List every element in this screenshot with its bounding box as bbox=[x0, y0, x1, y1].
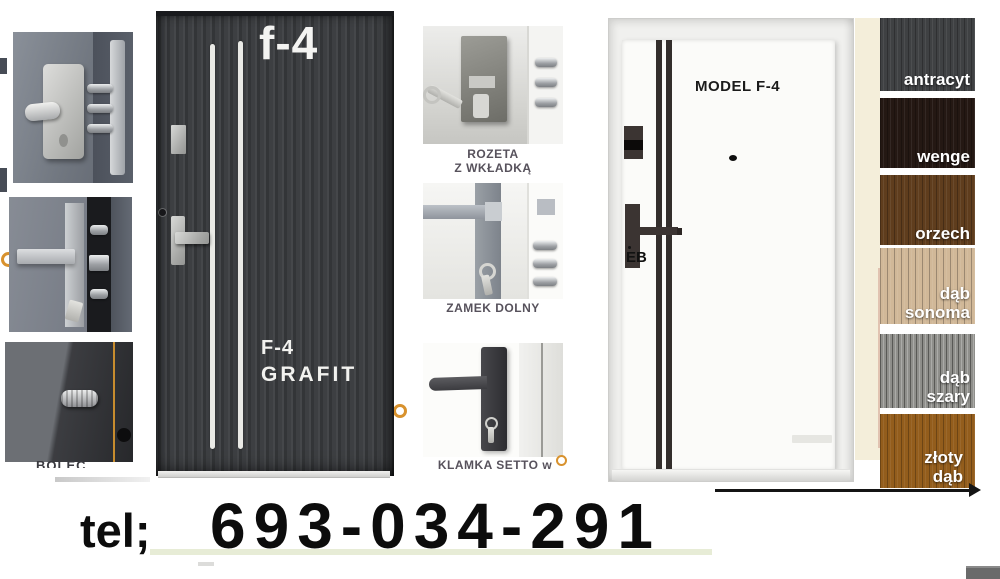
arrow-icon bbox=[969, 483, 981, 497]
swatch-label: dąb szary bbox=[910, 368, 970, 406]
bolt-shape bbox=[533, 241, 557, 250]
watermark-shape bbox=[792, 435, 832, 443]
door-edge-shape bbox=[527, 183, 563, 299]
caption-rozeta-line2: Z WKŁADKĄ bbox=[423, 161, 563, 175]
keyhole-shape bbox=[59, 134, 68, 147]
bolt-shape bbox=[535, 98, 557, 107]
white-door-model-label: MODEL F-4 bbox=[695, 78, 780, 95]
lock-cylinder-plate-shape bbox=[171, 125, 186, 154]
swatch-antracyt: antracyt bbox=[880, 18, 975, 91]
crossbar-nub-shape bbox=[677, 228, 682, 235]
swatch-orzech: orzech bbox=[880, 175, 975, 245]
door-leaf-shape: EB MODEL F-4 bbox=[622, 40, 835, 470]
handle-crossbar-shape bbox=[626, 227, 678, 235]
photo-handle-and-bolts bbox=[9, 197, 132, 332]
knob-shape bbox=[117, 428, 131, 442]
inox-stripe bbox=[238, 41, 243, 449]
photo-graphite-door: f-4 F-4 GRAFIT bbox=[156, 11, 394, 476]
swatch-label: orzech bbox=[888, 224, 970, 243]
watermark-dot bbox=[556, 455, 567, 466]
bolt-shape bbox=[90, 289, 108, 299]
swatch-label: antracyt bbox=[888, 70, 970, 89]
door-model-label: F-4 bbox=[261, 337, 294, 360]
bolt-shape bbox=[90, 225, 108, 235]
edge-artifact bbox=[0, 168, 7, 192]
caption-bolec-cutoff: BOLEC bbox=[36, 459, 116, 468]
bolt-shape bbox=[535, 78, 557, 87]
beige-background-strip bbox=[855, 18, 880, 460]
handle-lever-shape bbox=[17, 249, 75, 264]
watermark-dot bbox=[393, 404, 407, 418]
swatch-dab-sonoma: dąb sonoma bbox=[880, 248, 975, 324]
key-head-shape bbox=[423, 86, 441, 104]
dark-stripe bbox=[666, 40, 672, 470]
photo-zamek-dolny bbox=[423, 183, 563, 299]
bolt-shape bbox=[89, 255, 109, 271]
photo-klamka-setto bbox=[423, 343, 563, 457]
bolt-shape bbox=[87, 104, 113, 113]
photo-rozeta bbox=[423, 26, 563, 144]
swatch-label: wenge bbox=[888, 147, 970, 166]
swatch-label: złoty dąb bbox=[903, 448, 963, 486]
bar-tip-shape bbox=[485, 202, 502, 221]
bolt-shape bbox=[533, 277, 557, 286]
door-edge-shape bbox=[527, 26, 563, 144]
bolt-shape bbox=[537, 199, 555, 215]
door-finish-label: GRAFIT bbox=[261, 363, 357, 387]
door-sill-shape bbox=[158, 471, 390, 478]
bolt-shape bbox=[533, 259, 557, 268]
corner-artifact bbox=[966, 566, 1000, 579]
frame-shape bbox=[111, 197, 132, 332]
door-ad-flyer: BOLEC f-4 F-4 GRAFIT ROZETA Z WKŁADKĄ bbox=[0, 0, 1000, 579]
bolt-shape bbox=[87, 124, 113, 133]
swatch-dab-szary: dąb szary bbox=[880, 334, 975, 408]
door-edge-shape bbox=[87, 197, 111, 332]
door-edge-shape bbox=[93, 32, 133, 183]
caption-text: BOLEC bbox=[36, 459, 116, 468]
bolt-shape bbox=[87, 84, 113, 93]
brand-label: EB bbox=[626, 249, 647, 266]
smudge-artifact bbox=[198, 562, 214, 566]
key-shape bbox=[488, 427, 494, 443]
cutoff-text-artifact bbox=[55, 477, 150, 482]
peephole-icon bbox=[159, 209, 166, 216]
dark-stripe bbox=[656, 40, 662, 470]
peephole-icon bbox=[729, 155, 737, 161]
edge-artifact bbox=[0, 58, 7, 74]
swatch-label: dąb sonoma bbox=[900, 284, 970, 322]
handle-lever-shape bbox=[175, 232, 209, 244]
caption-klamka-cutoff: KLAMKA SETTO w bbox=[420, 456, 570, 469]
phone-label: tel; bbox=[80, 503, 151, 558]
handle-plate-shape bbox=[481, 347, 507, 451]
rosette-mechanism-shape bbox=[461, 36, 507, 122]
handle-lever-shape bbox=[429, 376, 487, 391]
photo-security-pin bbox=[5, 342, 133, 462]
door-sill-shape bbox=[612, 469, 850, 480]
security-pin-shape bbox=[61, 390, 98, 407]
pointer-line bbox=[715, 489, 971, 492]
bolt-shape bbox=[535, 58, 557, 67]
cylinder-shape bbox=[473, 94, 489, 118]
caption-text: KLAMKA SETTO w bbox=[438, 458, 552, 469]
cylinder-shape bbox=[469, 76, 495, 88]
photo-thumbturn-lock bbox=[13, 32, 133, 183]
swatch-zloty-dab: złoty dąb bbox=[880, 414, 975, 488]
lock-slot-shape bbox=[624, 140, 643, 150]
seam-line-shape bbox=[541, 343, 543, 457]
gasket-line-shape bbox=[113, 342, 115, 462]
caption-rozeta-line1: ROZETA bbox=[423, 147, 563, 161]
photo-white-door: EB MODEL F-4 bbox=[608, 18, 854, 482]
swatch-wenge: wenge bbox=[880, 98, 975, 168]
door-corner-label: f-4 bbox=[259, 16, 318, 70]
phone-number: 693-034-291 bbox=[210, 489, 661, 563]
caption-zamek: ZAMEK DOLNY bbox=[423, 301, 563, 315]
inox-stripe bbox=[210, 44, 215, 449]
